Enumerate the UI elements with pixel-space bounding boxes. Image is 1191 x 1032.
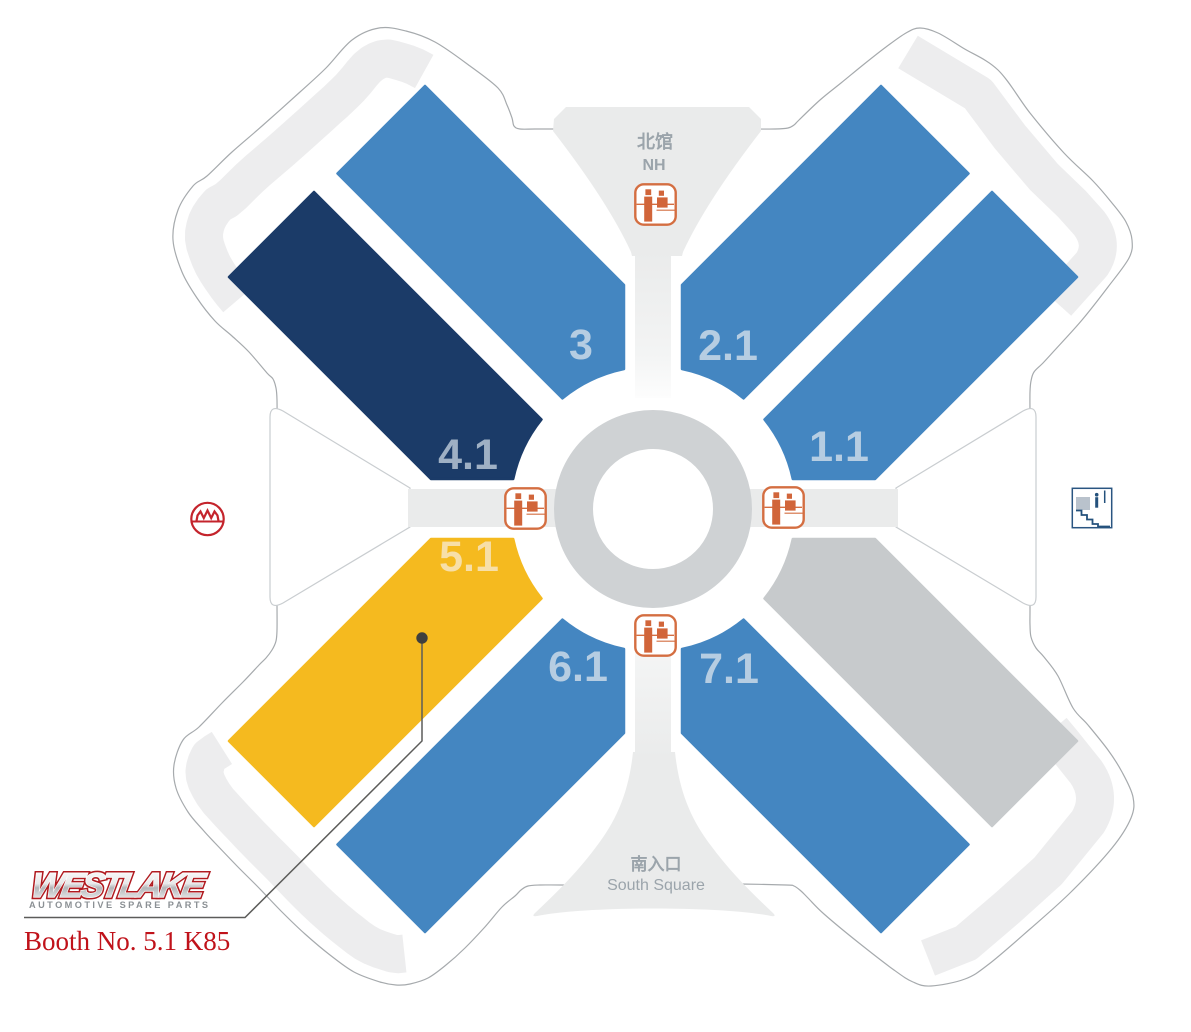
svg-text:NH: NH: [642, 157, 665, 174]
svg-text:South Square: South Square: [607, 877, 705, 894]
svg-text:7.1: 7.1: [699, 645, 759, 693]
svg-text:2.1: 2.1: [698, 322, 758, 370]
svg-text:5.1: 5.1: [439, 533, 499, 581]
svg-text:北馆: 北馆: [637, 131, 673, 152]
svg-text:1.1: 1.1: [809, 423, 869, 471]
svg-text:6.1: 6.1: [548, 643, 608, 691]
svg-text:AUTOMOTIVE SPARE PARTS: AUTOMOTIVE SPARE PARTS: [29, 900, 211, 910]
svg-text:4.1: 4.1: [438, 431, 498, 479]
svg-text:Booth No. 5.1 K85: Booth No. 5.1 K85: [24, 926, 230, 956]
svg-text:3: 3: [569, 321, 593, 369]
svg-text:南入口: 南入口: [631, 854, 682, 874]
